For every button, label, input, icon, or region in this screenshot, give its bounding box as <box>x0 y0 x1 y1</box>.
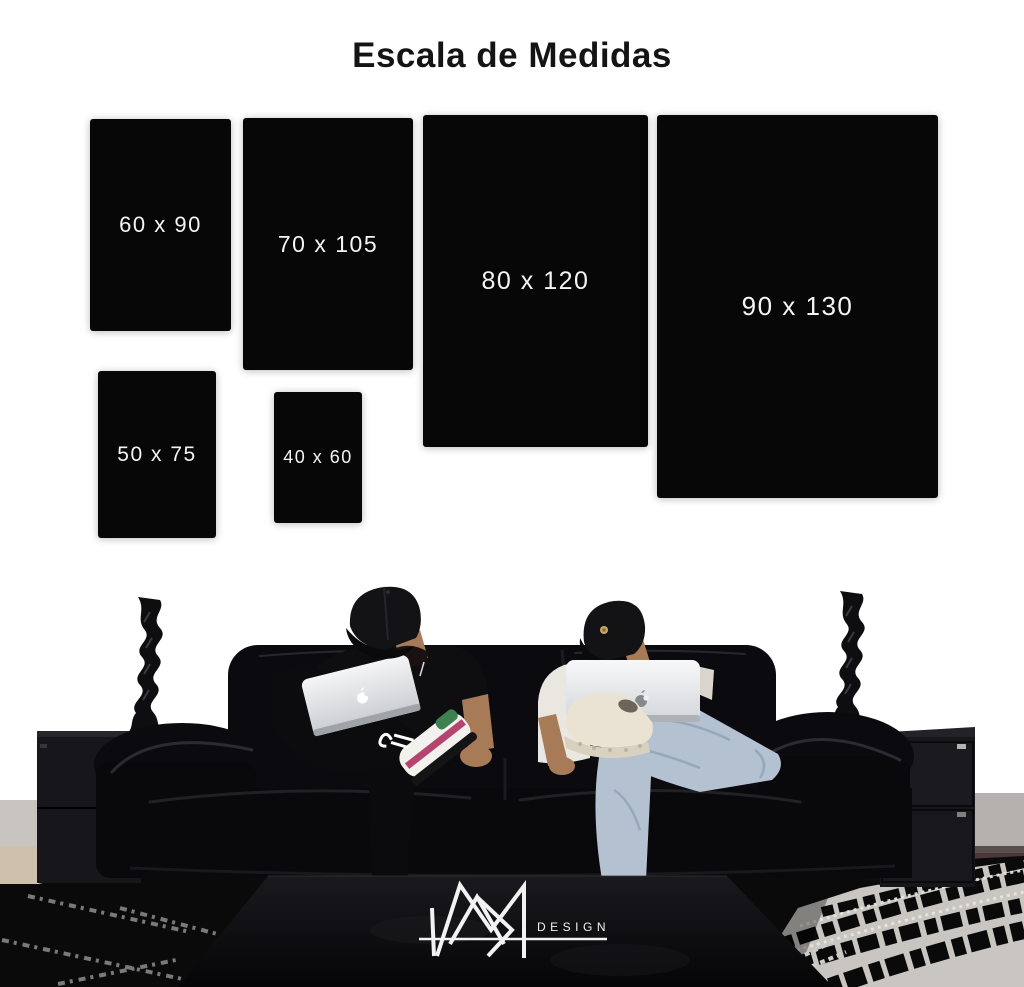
carpet-floor-left <box>0 846 37 888</box>
size-label: 80 x 120 <box>482 267 590 296</box>
size-label: 40 x 60 <box>283 447 353 468</box>
drawer-handle-notch <box>957 812 966 817</box>
wall-left <box>0 800 37 888</box>
man-left-lower-leg <box>368 758 416 878</box>
lifestyle-photo: DESIGN <box>0 560 1024 987</box>
size-label: 90 x 130 <box>742 291 854 322</box>
size-label: 60 x 90 <box>119 212 202 238</box>
twisted-candlestick-right <box>830 591 865 727</box>
size-box-90x130: 90 x 130 <box>657 115 938 498</box>
size-box-80x120: 80 x 120 <box>423 115 648 447</box>
size-box-50x75: 50 x 75 <box>98 371 216 538</box>
size-box-60x90: 60 x 90 <box>90 119 231 331</box>
leather-sofa <box>94 645 914 878</box>
size-scale-diagram: 60 x 9070 x 10580 x 12090 x 13050 x 7540… <box>0 0 1024 560</box>
coffee-table <box>178 876 833 987</box>
jeans-lower-leg <box>595 750 652 880</box>
size-box-70x105: 70 x 105 <box>243 118 413 370</box>
size-label: 70 x 105 <box>278 231 378 258</box>
black-cap-left <box>346 587 421 659</box>
poster: Escala de Medidas 60 x 9070 x 10580 x 12… <box>0 0 1024 987</box>
twisted-candlestick-left <box>128 597 163 733</box>
size-label: 50 x 75 <box>117 443 196 467</box>
brand-name: DESIGN <box>537 920 610 934</box>
size-box-40x60: 40 x 60 <box>274 392 362 523</box>
living-room-scene: DESIGN <box>0 560 1024 987</box>
drawer-handle-notch <box>957 744 966 749</box>
